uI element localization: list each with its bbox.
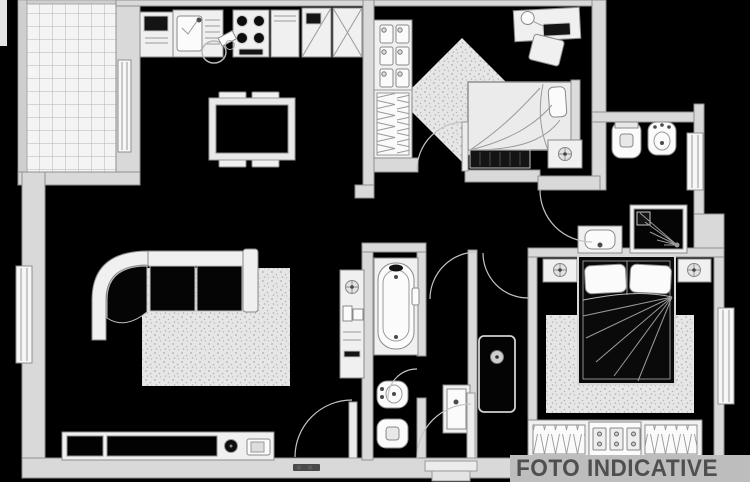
kitchen-cabinet-x1 (302, 8, 331, 57)
dining-table (209, 98, 295, 160)
wall-bedroom1-bottom-b (465, 170, 540, 182)
desk-lamp (521, 11, 535, 25)
shoe-wardrobe (374, 20, 412, 158)
window-bathroom2 (687, 133, 703, 190)
pillow (629, 264, 671, 294)
nightstand-bedroom1 (548, 140, 582, 168)
floor-plan-svg: FOTO INDICATIVE (0, 0, 750, 482)
wall-bedroom1-bottom-a (374, 158, 418, 172)
wall-right-jog (694, 214, 724, 252)
watermark-text: FOTO INDICATIVE (516, 455, 718, 482)
pillow (548, 86, 567, 117)
wall-bathroom1-top (362, 243, 426, 252)
window-bedroom2 (718, 308, 734, 404)
terrace-wall-left (18, 0, 27, 172)
shower (630, 205, 687, 253)
hanging-section (645, 425, 697, 454)
window-terrace-door (118, 60, 131, 152)
kitchen-cabinet-x2 (333, 8, 362, 57)
entrance-steps (425, 461, 477, 481)
floor-plan-image: FOTO INDICATIVE (0, 0, 750, 482)
wall-bathroom2-top (592, 112, 704, 122)
bidet (648, 122, 676, 155)
wall-bedroom2-left (528, 257, 537, 422)
plant (688, 264, 701, 277)
sideboard (62, 432, 274, 460)
washbasin-column (479, 336, 515, 412)
plant (346, 281, 359, 294)
nightstand-left (543, 259, 577, 282)
drawers (593, 428, 640, 450)
cooktop (233, 10, 269, 57)
plant (554, 264, 567, 277)
wall-top (116, 0, 606, 6)
shelf-cabinet (340, 270, 364, 378)
toilet (612, 122, 641, 158)
washbasin-bathroom2 (578, 226, 622, 253)
wall-bedroom1-right (592, 0, 606, 190)
plant (559, 148, 572, 161)
bench (470, 150, 530, 168)
wall-corner-sliver (0, 0, 7, 46)
wall-bedroom1-bottom-c (538, 176, 600, 190)
fine-print-smudge (293, 464, 320, 471)
hanging-section (377, 93, 409, 155)
watermark: FOTO INDICATIVE (510, 455, 750, 482)
bidet-bathroom1 (377, 381, 408, 408)
window-living-left (16, 266, 32, 363)
wall-kitchen-bedroom1 (363, 0, 374, 198)
toilet-bathroom1 (377, 419, 408, 448)
wall-endcap (355, 185, 374, 198)
wardrobe-bedroom2 (528, 420, 702, 458)
pillow (584, 264, 626, 294)
kitchen-cabinet-left (140, 12, 173, 57)
double-bed (578, 256, 675, 384)
terrace-wall-top (27, 0, 116, 4)
bathtub (374, 258, 419, 355)
kitchen-sink (173, 10, 223, 57)
terrace-tiles (27, 4, 116, 172)
hanging-section (533, 425, 585, 454)
wall-bathroom1-right-lower (417, 398, 426, 458)
nightstand-right (678, 259, 711, 282)
kitchen-counter-segment (271, 10, 299, 57)
